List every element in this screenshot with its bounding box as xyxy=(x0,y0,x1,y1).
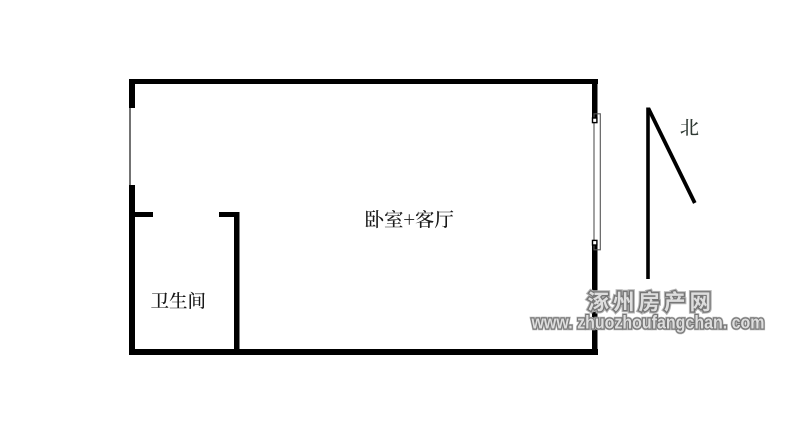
svg-text:www. zhuozhoufangchan. com: www. zhuozhoufangchan. com xyxy=(531,312,765,332)
